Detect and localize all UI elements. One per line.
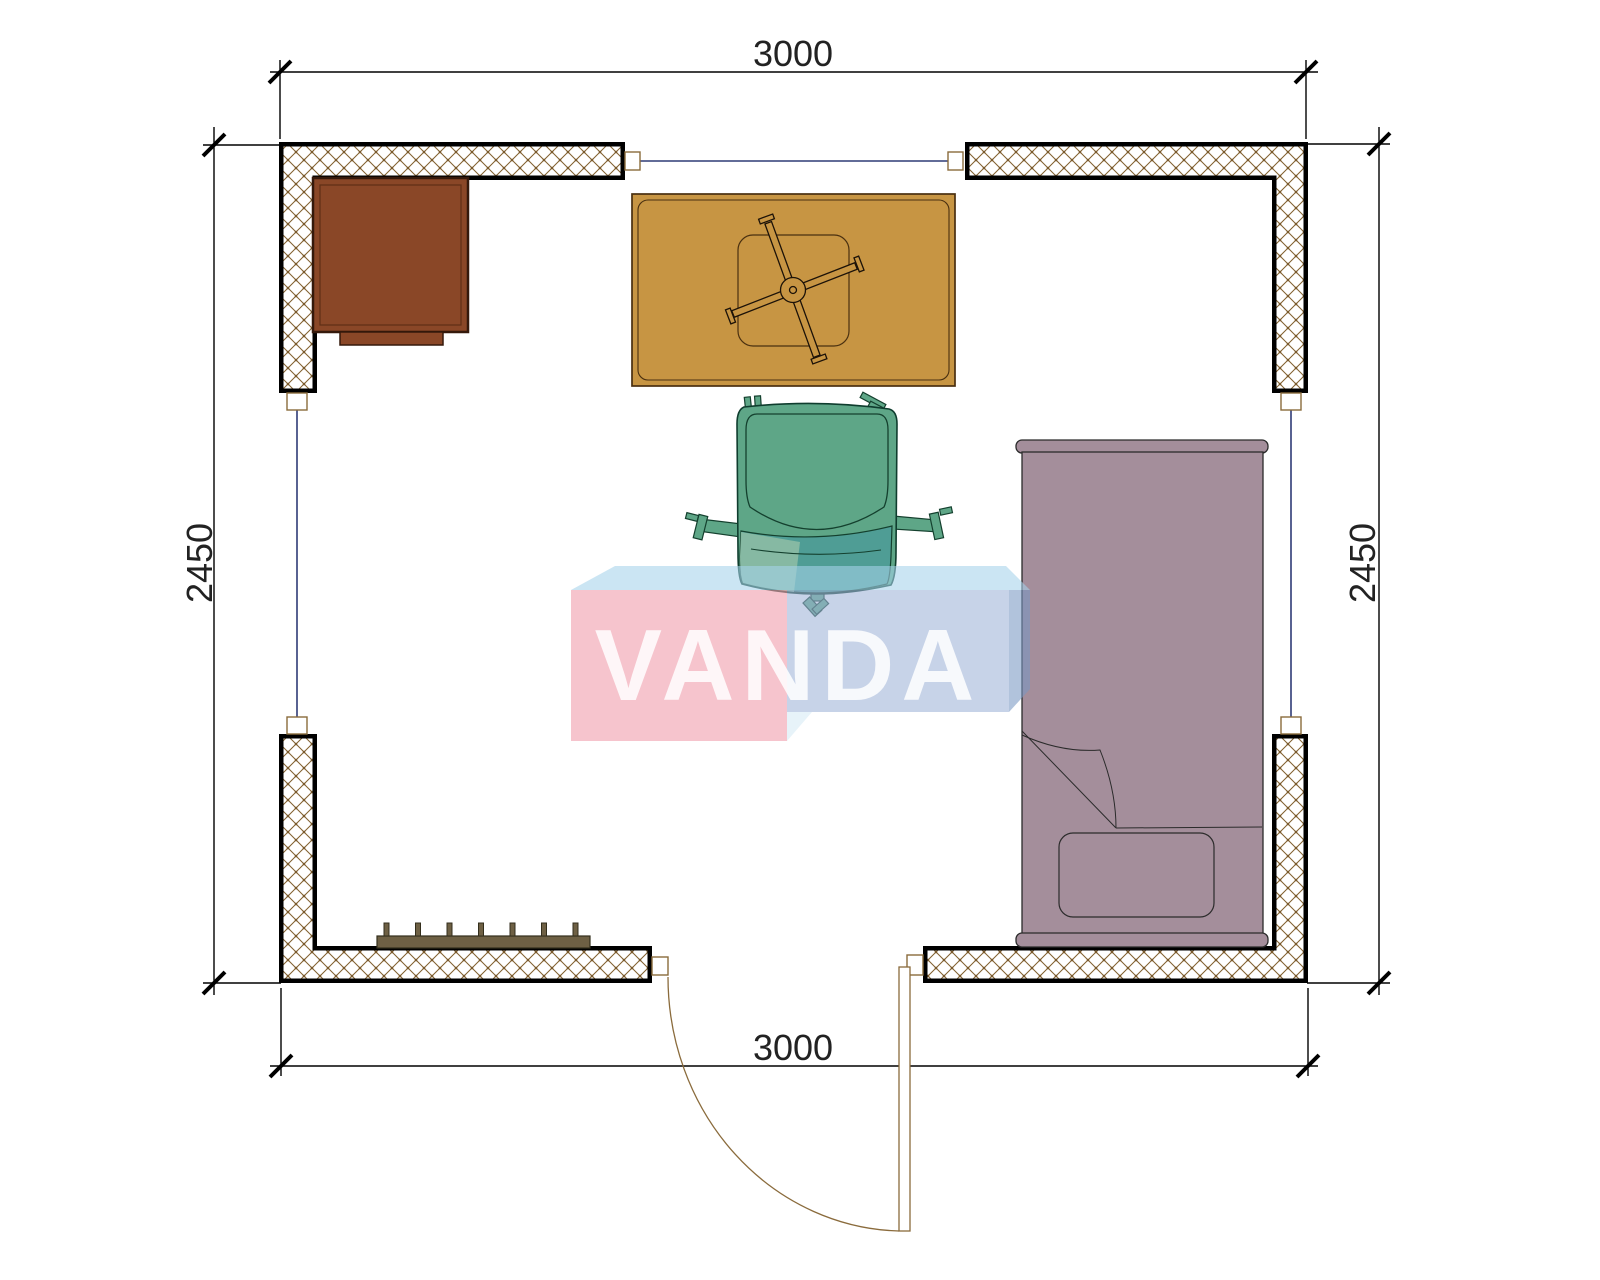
svg-text:3000: 3000	[753, 1027, 833, 1068]
svg-text:3000: 3000	[753, 33, 833, 74]
svg-text:2450: 2450	[179, 523, 220, 603]
svg-text:VANDA: VANDA	[595, 610, 982, 722]
svg-text:2450: 2450	[1342, 523, 1383, 603]
